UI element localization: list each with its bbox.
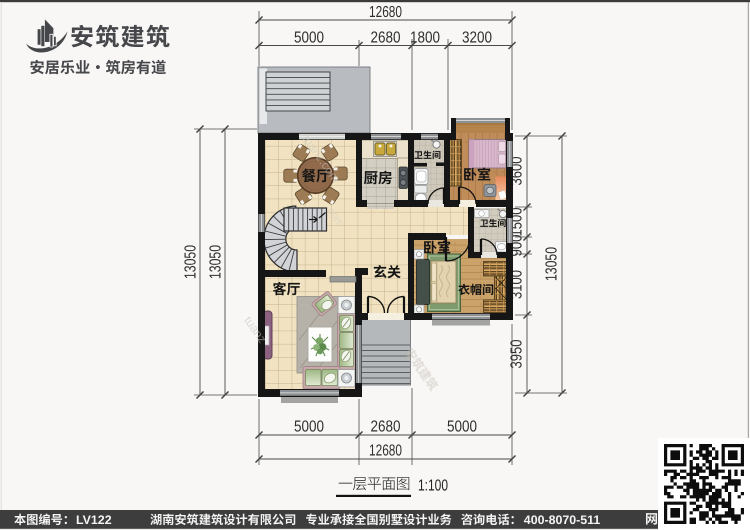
svg-text:1800: 1800 (410, 30, 440, 47)
svg-text:5000: 5000 (447, 419, 477, 436)
svg-text:400-8070-511: 400-8070-511 (524, 513, 601, 527)
svg-text:1:100: 1:100 (418, 478, 448, 495)
svg-text:5000: 5000 (294, 30, 324, 47)
svg-text:3950: 3950 (509, 339, 526, 368)
svg-text:2680: 2680 (371, 419, 401, 436)
svg-text:13050: 13050 (544, 247, 561, 281)
svg-text:12680: 12680 (369, 4, 402, 21)
svg-text:5000: 5000 (294, 419, 324, 436)
svg-text:2680: 2680 (371, 30, 401, 47)
svg-text:3200: 3200 (462, 30, 492, 47)
svg-text:13050: 13050 (208, 245, 225, 279)
svg-text:13050: 13050 (183, 245, 200, 279)
svg-text:LV122: LV122 (76, 513, 112, 527)
svg-text:12680: 12680 (369, 443, 402, 460)
